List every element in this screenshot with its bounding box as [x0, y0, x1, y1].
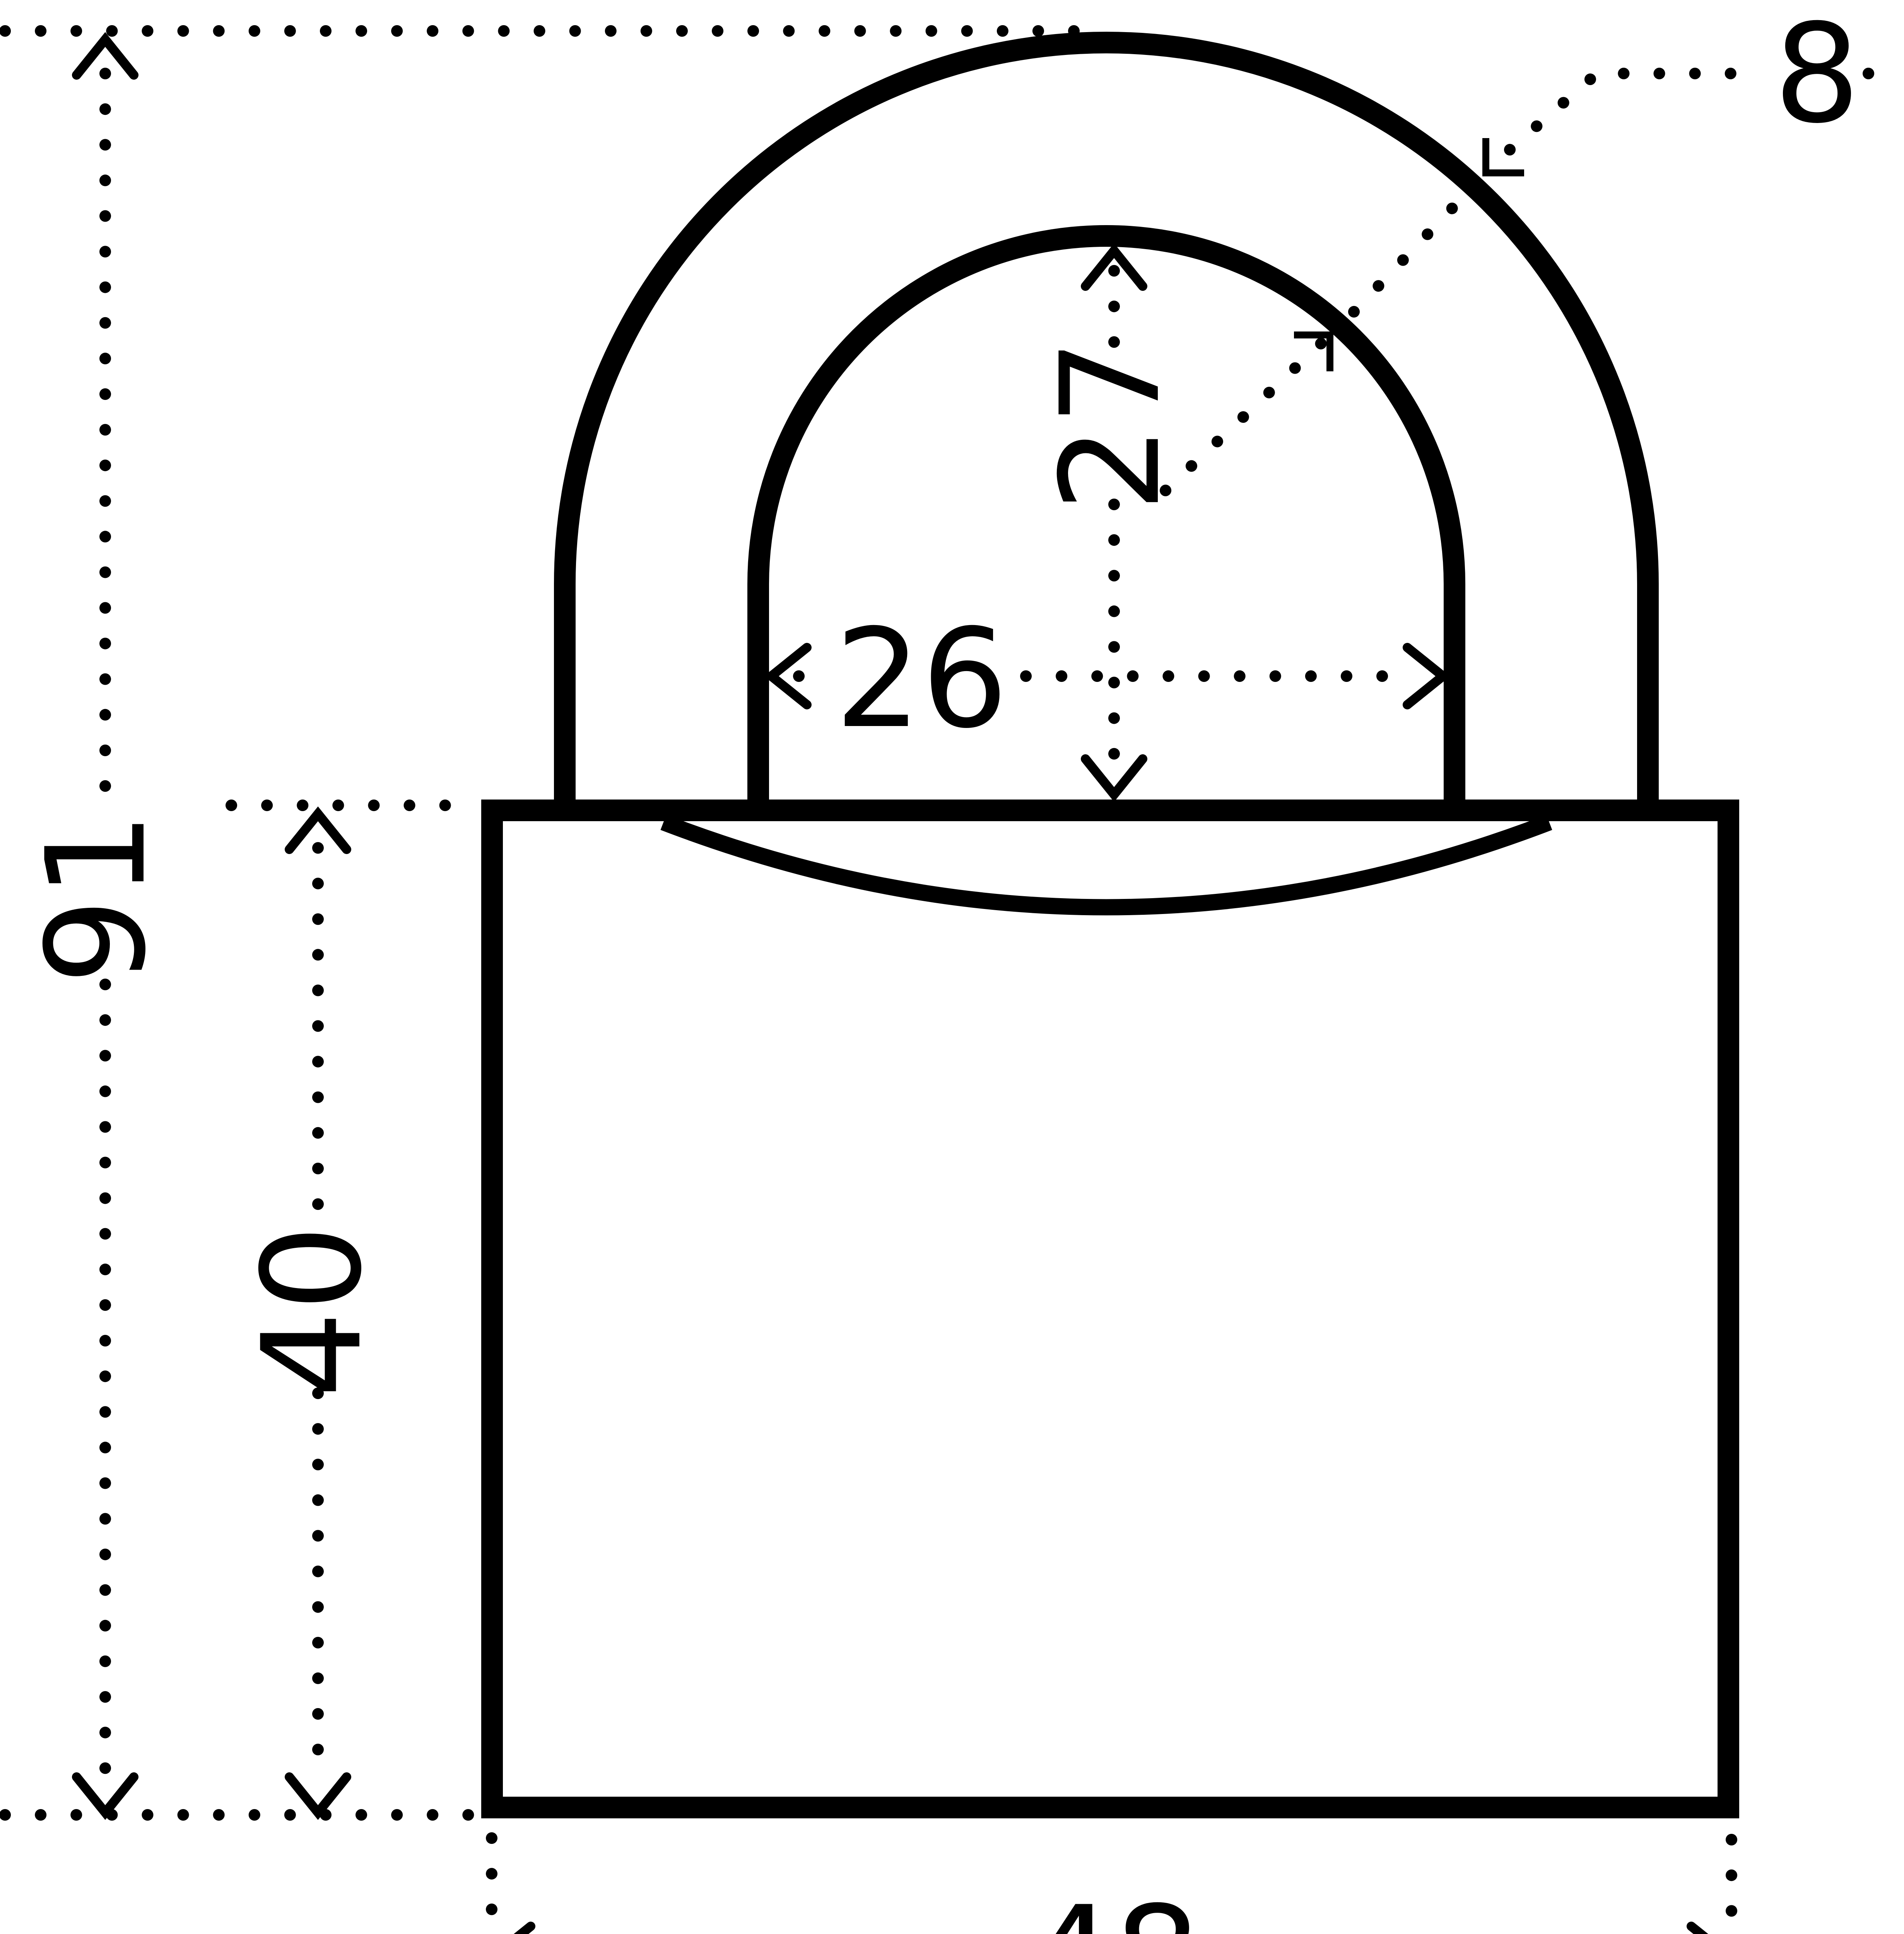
- arrowhead-down-icon: [289, 1777, 347, 1813]
- dimension-shackle-inner-height: 27: [1032, 251, 1190, 794]
- leader-8-middle-segment: [1354, 174, 1484, 312]
- dim-label-shackle-wire-diameter: 8: [1774, 0, 1860, 154]
- padlock-dimension-drawing: 91 40 48 26: [0, 0, 1904, 1934]
- dim-label-body-width: 48: [1027, 1877, 1201, 1934]
- dim-label-body-height: 40: [233, 1225, 392, 1398]
- arrowhead-down-icon: [77, 1777, 134, 1813]
- dim-label-total-height: 91: [17, 812, 176, 985]
- arrowhead-left-icon: [495, 1926, 531, 1934]
- dimension-total-height: 91: [17, 39, 176, 1813]
- leader-8-outer-segment: [1510, 73, 1764, 150]
- arrowhead-down-icon: [1085, 759, 1143, 794]
- arrowhead-right-icon: [1691, 1926, 1727, 1934]
- leader-tick-outer-icon: [1486, 138, 1524, 173]
- drawing-canvas: 91 40 48 26: [0, 0, 1904, 1934]
- dimension-body-width: 48: [495, 1877, 1727, 1934]
- dimension-body-height: 40: [233, 814, 392, 1813]
- padlock-body: [492, 810, 1728, 1808]
- arrowhead-right-icon: [1407, 648, 1443, 705]
- dim-label-shackle-inner-width: 26: [835, 600, 1008, 759]
- dimension-shackle-inner-width: 26: [771, 600, 1443, 759]
